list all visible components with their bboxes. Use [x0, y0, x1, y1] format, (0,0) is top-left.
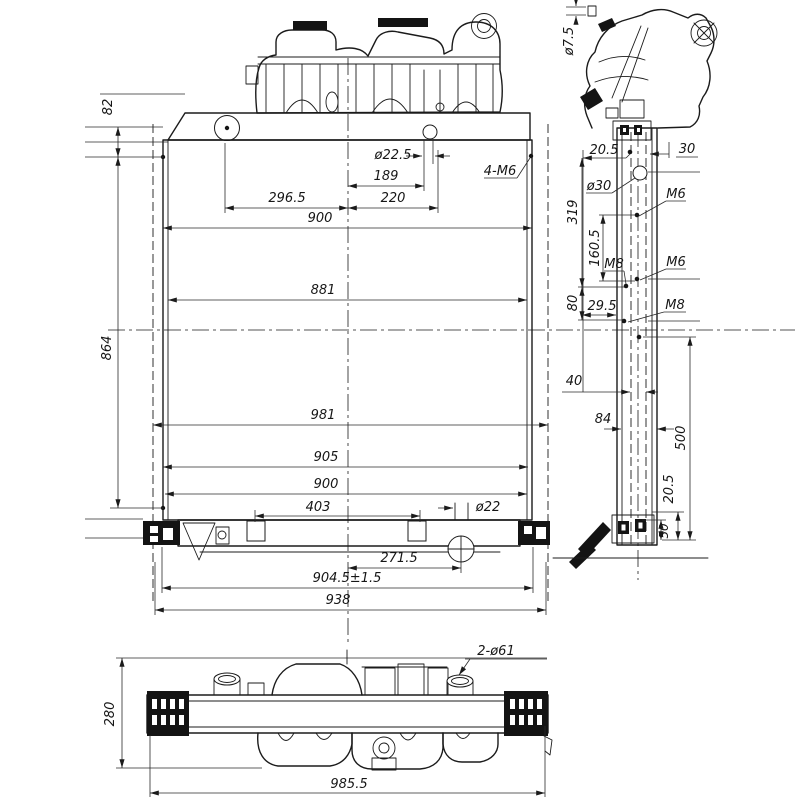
hole-dia30: [633, 166, 647, 180]
expansion-tank-front: [246, 14, 502, 114]
dim-82: 82: [101, 99, 116, 116]
dim-4-M6: 4-M6: [484, 164, 516, 179]
dim-900-top: 900: [308, 211, 333, 226]
dim-M8-lower: M8: [665, 298, 685, 313]
dim-M6-lower: M6: [666, 255, 686, 270]
dim-dia30: ø30: [586, 179, 612, 194]
dim-904-5: 904.5±1.5: [313, 571, 382, 586]
drain-funnel: [183, 523, 215, 560]
side-column: [613, 121, 657, 580]
side-bottom-bracket: [553, 515, 708, 569]
cap-cylinder-right: [447, 675, 473, 687]
dim-dia7-5: ø7.5: [562, 27, 577, 57]
end-tank-left: [147, 691, 189, 736]
dim-2-dia61: 2-ø61: [477, 644, 514, 659]
tank-rib-top: [378, 18, 428, 27]
mount-bracket-left: [143, 521, 180, 545]
dim-280: 280: [103, 702, 118, 727]
mount-hole-right: [423, 125, 437, 139]
dim-981: 981: [311, 408, 336, 423]
bottom-view: 280 2-ø61 985.5: [103, 644, 552, 797]
dim-220: 220: [381, 191, 406, 206]
cap-cylinder-left: [214, 673, 240, 685]
dim-900-bottom: 900: [314, 477, 339, 492]
dim-271-5: 271.5: [380, 551, 417, 566]
dim-40: 40: [566, 374, 583, 389]
dim-M8-upper: M8: [604, 257, 624, 272]
dim-80: 80: [566, 295, 581, 312]
front-view: 82 864 ø22.5 189 296.5 220 4-M6 900 881: [85, 14, 795, 643]
dim-296-5: 296.5: [268, 191, 305, 206]
dim-84: 84: [595, 412, 612, 427]
bottom-connector: [372, 758, 396, 770]
dim-864: 864: [100, 336, 115, 361]
dim-dia22: ø22: [475, 500, 501, 515]
tank-contour-top: [214, 664, 473, 695]
dim-403: 403: [306, 500, 331, 515]
tank-contour-bottom: [258, 733, 498, 770]
dim-30: 30: [679, 142, 696, 157]
dim-M6-upper: M6: [666, 187, 686, 202]
dim-881: 881: [311, 283, 336, 298]
dim-160-5: 160.5: [588, 229, 603, 266]
dim-20-5-top: 20.5: [590, 143, 619, 158]
dim-319: 319: [566, 200, 581, 225]
dim-dia22-5: ø22.5: [374, 148, 412, 163]
dim-500: 500: [674, 426, 689, 451]
pressure-cap: [472, 14, 497, 39]
tank-cap-left: [293, 21, 327, 30]
dim-985-5: 985.5: [330, 777, 367, 792]
dim-29-5: 29.5: [588, 299, 617, 314]
dim-938: 938: [326, 593, 351, 608]
drawing-canvas: 82 864 ø22.5 189 296.5 220 4-M6 900 881: [0, 0, 800, 800]
expansion-tank-side: [580, 6, 717, 128]
dim-20-5-bottom: 20.5: [662, 475, 677, 504]
dim-189: 189: [374, 169, 399, 184]
side-view: ø7.5 20.5 30 ø30 319 160.5 M6 M8: [553, 1, 717, 580]
dim-50: 50: [657, 523, 671, 539]
dim-905: 905: [314, 450, 339, 465]
engineering-drawing-radiator: 82 864 ø22.5 189 296.5 220 4-M6 900 881: [0, 0, 800, 800]
